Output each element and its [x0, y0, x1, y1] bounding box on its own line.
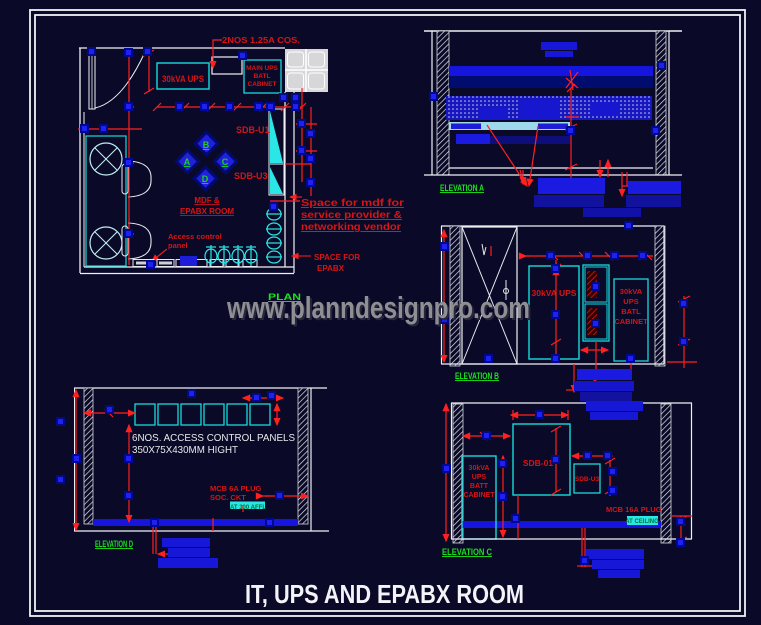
svg-text:ELEVATION D: ELEVATION D: [95, 539, 133, 549]
svg-text:ELEVATION C: ELEVATION C: [442, 547, 492, 557]
svg-text:2NOS 1.25A COS.: 2NOS 1.25A COS.: [222, 35, 300, 45]
svg-text:B: B: [203, 140, 210, 150]
svg-text:350X75X430MM HIGHT: 350X75X430MM HIGHT: [132, 444, 239, 456]
svg-text:BATL: BATL: [621, 307, 641, 316]
svg-text:ELEVATION B: ELEVATION B: [455, 371, 499, 381]
svg-text:panel: panel: [168, 241, 188, 250]
svg-text:AT 300 AFFL: AT 300 AFFL: [230, 505, 266, 511]
svg-text:30kVA UPS: 30kVA UPS: [532, 288, 577, 298]
svg-text:IT, UPS AND EPABX ROOM: IT, UPS AND EPABX ROOM: [245, 579, 524, 609]
svg-text:SDB-U3: SDB-U3: [234, 171, 268, 181]
svg-text:Access control: Access control: [168, 232, 222, 241]
svg-text:MAIN UPS: MAIN UPS: [246, 65, 278, 72]
svg-text:SOC. CKT: SOC. CKT: [210, 493, 246, 502]
svg-text:MCB 16A PLUG: MCB 16A PLUG: [606, 505, 662, 514]
svg-text:BATL: BATL: [254, 73, 271, 80]
svg-text:UPS: UPS: [472, 474, 487, 481]
svg-text:www.planndesignpro.com: www.planndesignpro.com: [226, 290, 530, 325]
svg-text:SPACE FOR: SPACE FOR: [314, 253, 360, 262]
svg-text:SDB-01: SDB-01: [523, 458, 554, 468]
svg-text:30kVA UPS: 30kVA UPS: [162, 74, 204, 84]
svg-text:D: D: [202, 174, 209, 184]
svg-text:CABINET: CABINET: [463, 492, 495, 499]
svg-text:30kVA: 30kVA: [620, 287, 643, 296]
svg-text:6NOS. ACCESS CONTROL PANELS: 6NOS. ACCESS CONTROL PANELS: [132, 432, 295, 444]
svg-text:service provider &: service provider &: [301, 210, 402, 221]
svg-text:C: C: [222, 157, 229, 167]
svg-text:SDB-U3: SDB-U3: [575, 476, 600, 483]
svg-text:ELEVATION A: ELEVATION A: [440, 183, 484, 193]
svg-text:MCB 6A PLUG: MCB 6A PLUG: [210, 484, 262, 493]
svg-text:Space for mdf for: Space for mdf for: [301, 198, 404, 209]
svg-text:SDB-U1: SDB-U1: [236, 125, 270, 135]
svg-text:CABINET: CABINET: [248, 81, 277, 88]
svg-text:CABINET: CABINET: [614, 317, 648, 326]
svg-text:EPABX: EPABX: [317, 264, 345, 273]
svg-text:30kVA: 30kVA: [469, 465, 490, 472]
svg-text:A: A: [184, 157, 191, 167]
svg-text:EPABX ROOM: EPABX ROOM: [180, 207, 234, 216]
svg-text:UPS: UPS: [623, 297, 638, 306]
svg-text:BATT: BATT: [470, 483, 489, 490]
svg-text:AT CEILING: AT CEILING: [625, 519, 659, 525]
svg-text:MDF &: MDF &: [194, 196, 220, 205]
svg-text:networking vendor: networking vendor: [301, 222, 401, 233]
